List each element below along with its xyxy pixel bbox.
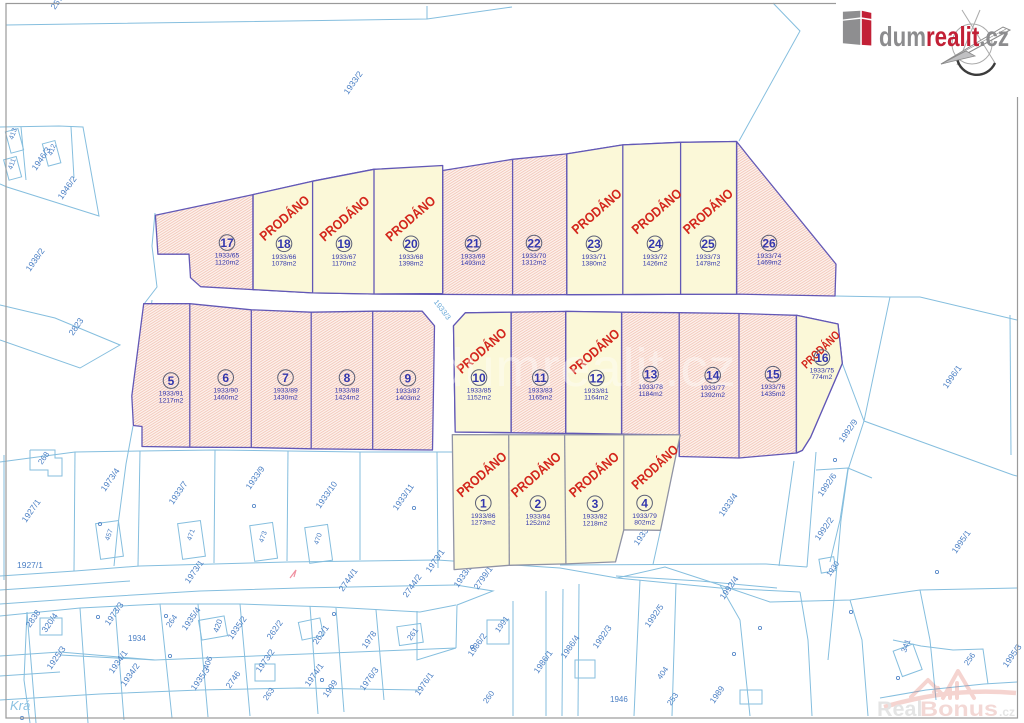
svg-text:12: 12 <box>590 371 604 385</box>
svg-text:1312m2: 1312m2 <box>522 260 547 267</box>
svg-text:17: 17 <box>220 236 234 250</box>
svg-text:1165m2: 1165m2 <box>528 394 552 401</box>
svg-text:1252m2: 1252m2 <box>526 520 551 527</box>
svg-text:16: 16 <box>815 351 829 365</box>
svg-text:1478m2: 1478m2 <box>696 261 721 268</box>
svg-text:22: 22 <box>527 236 541 250</box>
svg-text:4: 4 <box>641 496 648 510</box>
svg-text:10: 10 <box>472 371 486 385</box>
svg-text:6: 6 <box>222 371 229 385</box>
svg-text:1392m2: 1392m2 <box>700 392 725 399</box>
svg-text:15: 15 <box>766 368 780 382</box>
svg-text:21: 21 <box>466 237 480 251</box>
svg-text:1493m2: 1493m2 <box>461 260 486 267</box>
svg-text:19: 19 <box>337 237 351 251</box>
svg-text:1170m2: 1170m2 <box>332 261 356 268</box>
svg-text:802m2: 802m2 <box>634 520 655 527</box>
svg-text:1469m2: 1469m2 <box>757 260 782 267</box>
svg-text:25: 25 <box>701 237 715 251</box>
svg-text:7: 7 <box>282 371 289 385</box>
svg-text:1426m2: 1426m2 <box>643 261 668 268</box>
svg-text:11: 11 <box>534 371 547 385</box>
svg-text:13: 13 <box>644 368 658 382</box>
svg-text:774m2: 774m2 <box>812 374 833 381</box>
svg-text:1164m2: 1164m2 <box>584 395 608 402</box>
svg-text:.cz: .cz <box>999 705 1015 719</box>
svg-text:1927/1: 1927/1 <box>17 560 43 570</box>
svg-text:1184m2: 1184m2 <box>639 391 663 398</box>
svg-text:1403m2: 1403m2 <box>396 395 421 402</box>
svg-text:18: 18 <box>277 237 291 251</box>
svg-text:1218m2: 1218m2 <box>583 520 608 527</box>
svg-text:1934: 1934 <box>128 634 146 643</box>
svg-text:1435m2: 1435m2 <box>761 391 786 398</box>
svg-text:Real: Real <box>877 697 922 721</box>
svg-text:23: 23 <box>587 237 601 251</box>
svg-text:1380m2: 1380m2 <box>582 261 607 268</box>
svg-text:20: 20 <box>404 237 418 251</box>
svg-text:1: 1 <box>480 496 487 510</box>
svg-text:1078m2: 1078m2 <box>272 261 297 268</box>
svg-text:1424m2: 1424m2 <box>335 394 360 401</box>
svg-text:3: 3 <box>592 497 599 511</box>
svg-text:dumrealit.cz: dumrealit.cz <box>879 21 1009 52</box>
svg-text:1946: 1946 <box>610 695 628 704</box>
svg-text:24: 24 <box>648 237 662 251</box>
svg-text:1398m2: 1398m2 <box>399 261 424 268</box>
svg-text:14: 14 <box>706 369 720 383</box>
svg-text:1460m2: 1460m2 <box>213 394 238 401</box>
svg-text:1152m2: 1152m2 <box>467 394 491 401</box>
svg-text:5: 5 <box>168 374 175 388</box>
svg-text:1120m2: 1120m2 <box>215 259 239 266</box>
svg-text:1430m2: 1430m2 <box>273 394 298 401</box>
svg-text:2: 2 <box>535 497 542 511</box>
svg-text:Bonus: Bonus <box>920 697 998 721</box>
svg-text:Krá: Krá <box>10 698 30 713</box>
svg-text:8: 8 <box>344 371 351 385</box>
svg-text:9: 9 <box>405 372 412 386</box>
svg-text:1273m2: 1273m2 <box>471 520 496 527</box>
svg-text:1217m2: 1217m2 <box>159 397 184 404</box>
svg-text:26: 26 <box>762 236 776 250</box>
